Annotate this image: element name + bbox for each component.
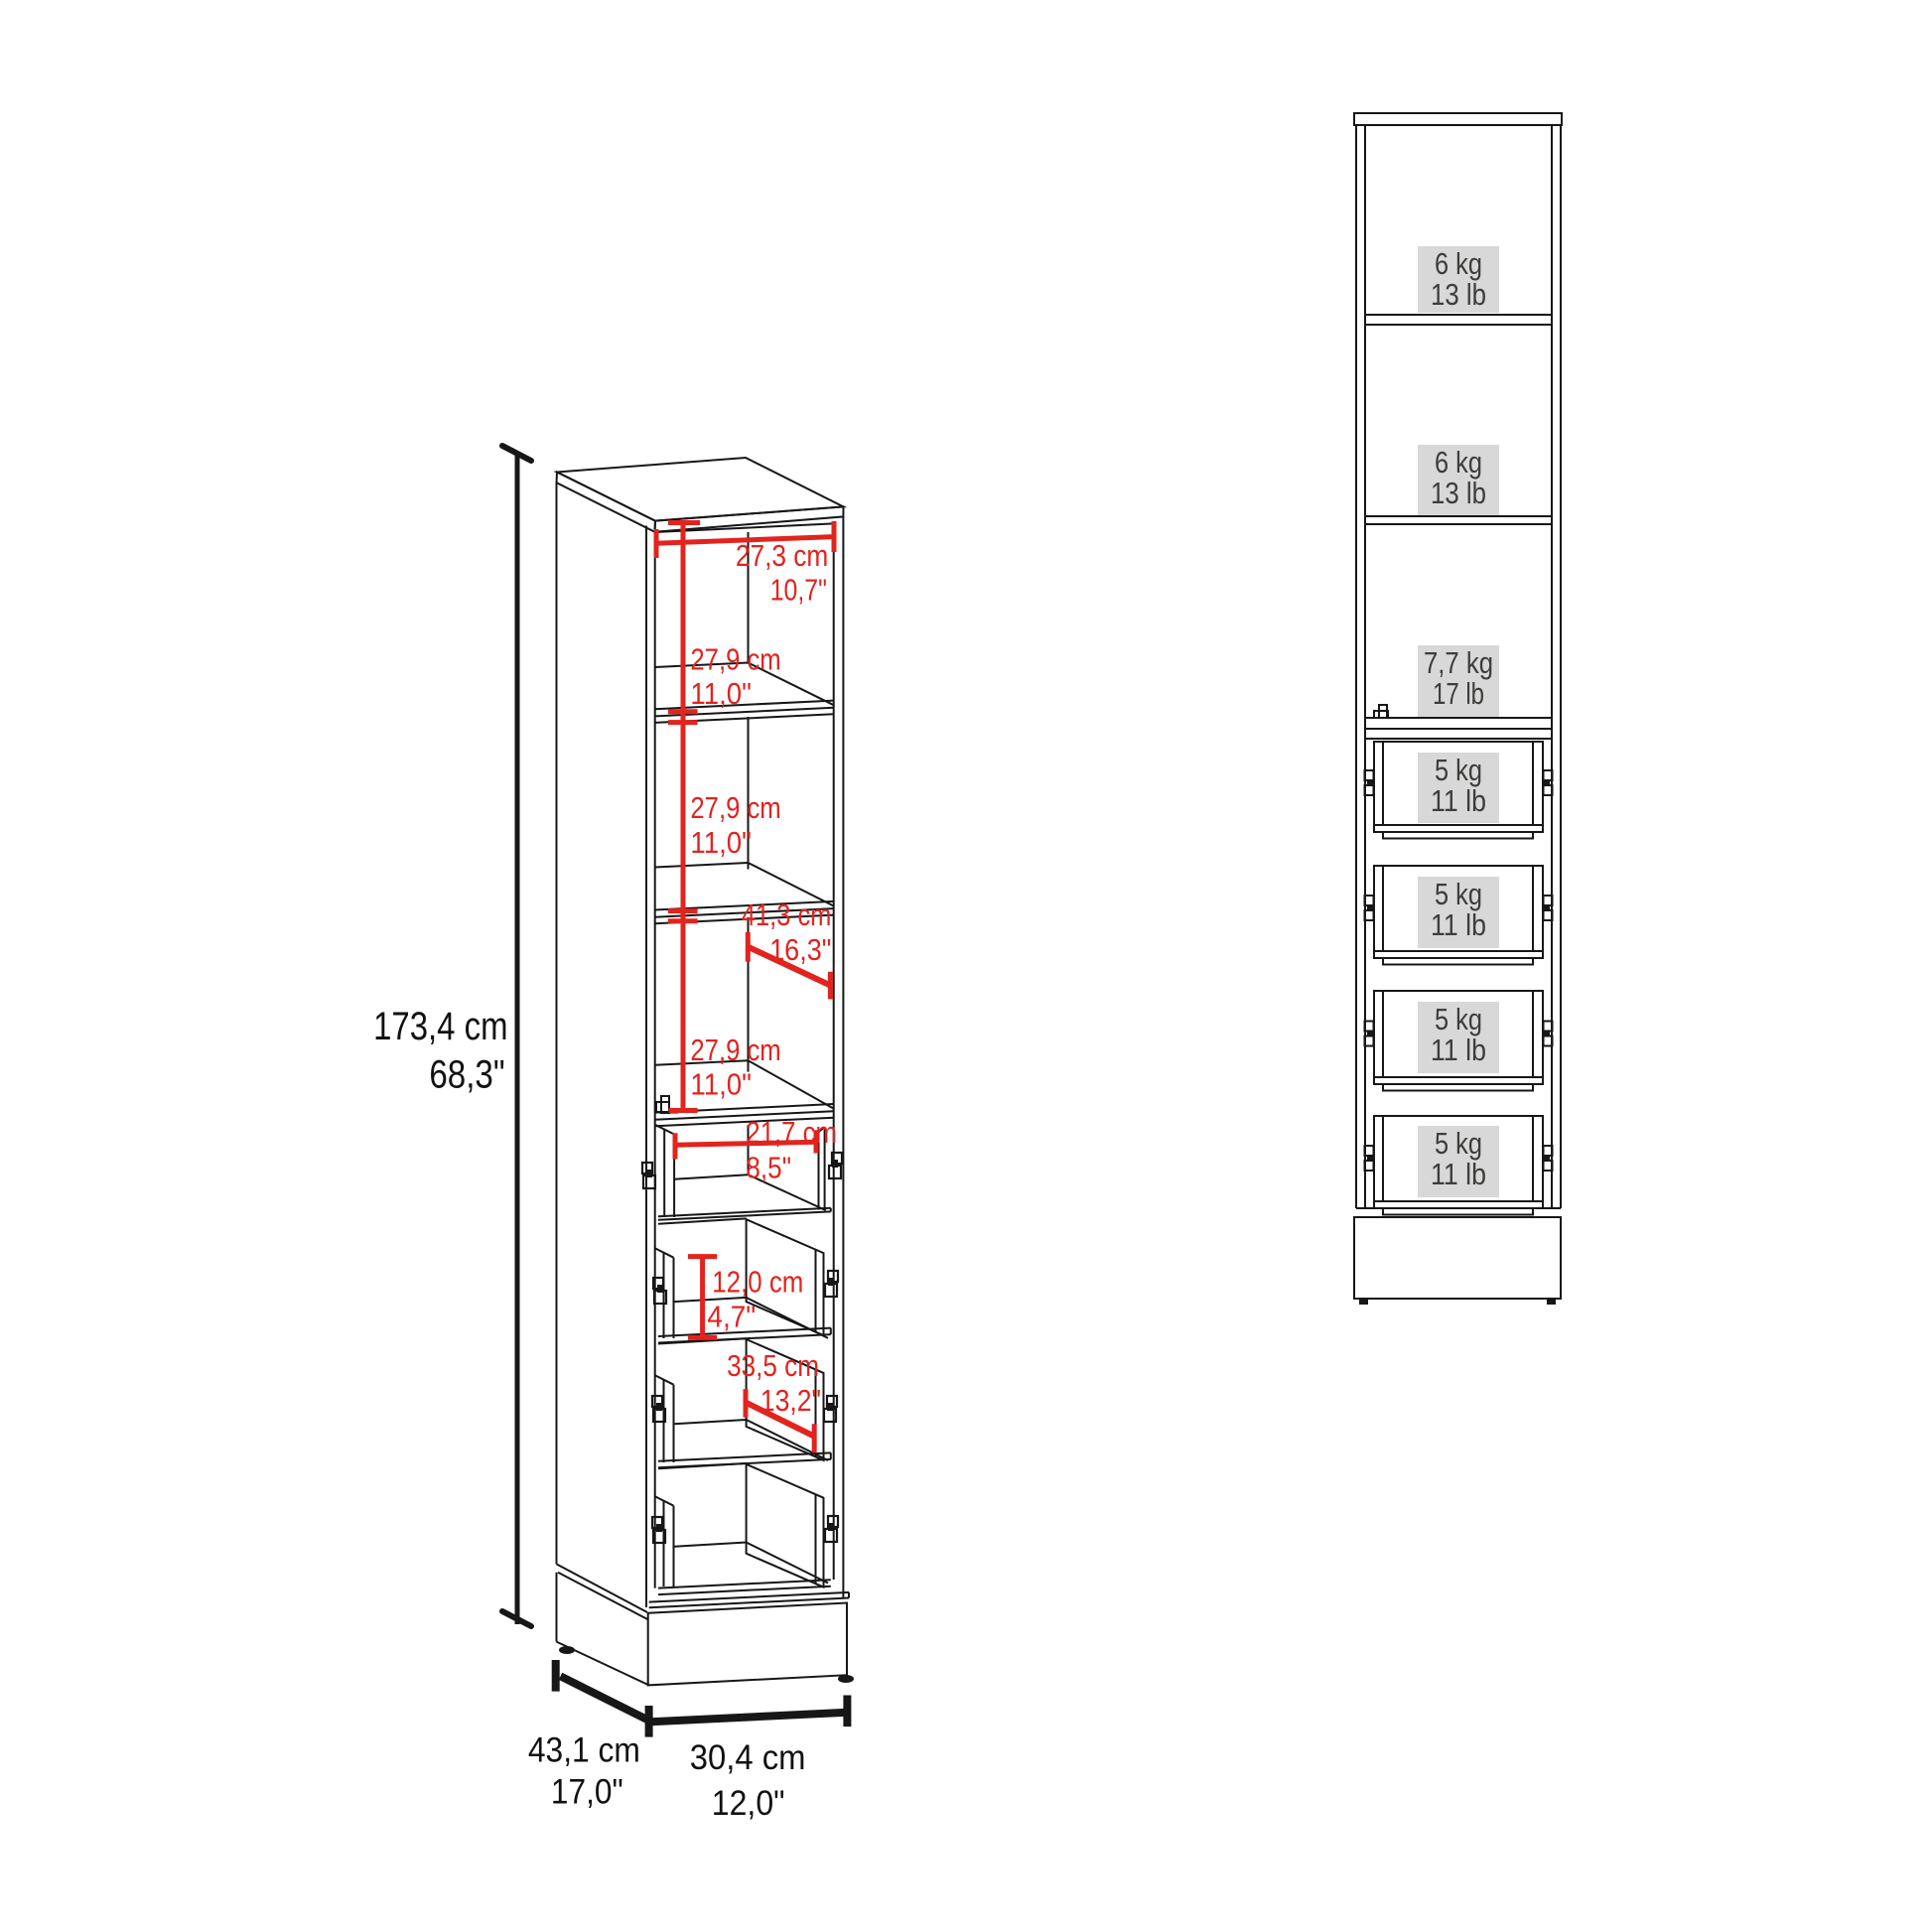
svg-text:12,0": 12,0"	[712, 1784, 785, 1823]
svg-text:21,7 cm: 21,7 cm	[746, 1115, 837, 1150]
svg-text:17 lb: 17 lb	[1433, 676, 1484, 711]
svg-text:7,7 kg: 7,7 kg	[1424, 645, 1493, 680]
svg-text:11 lb: 11 lb	[1431, 1033, 1486, 1067]
svg-text:27,9 cm: 27,9 cm	[690, 642, 780, 677]
svg-text:13 lb: 13 lb	[1431, 476, 1486, 510]
svg-text:13,2": 13,2"	[760, 1383, 821, 1418]
svg-text:10,7": 10,7"	[770, 573, 827, 608]
svg-text:8,5": 8,5"	[746, 1151, 791, 1185]
svg-text:11 lb: 11 lb	[1431, 783, 1486, 818]
svg-text:5 kg: 5 kg	[1435, 877, 1482, 911]
svg-text:6 kg: 6 kg	[1435, 246, 1482, 281]
svg-text:68,3": 68,3"	[429, 1053, 504, 1097]
svg-text:11 lb: 11 lb	[1431, 907, 1486, 942]
svg-text:27,3 cm: 27,3 cm	[736, 538, 828, 573]
svg-text:43,1 cm: 43,1 cm	[528, 1731, 640, 1770]
svg-text:13 lb: 13 lb	[1431, 277, 1486, 312]
svg-text:4,7": 4,7"	[707, 1300, 756, 1334]
svg-text:16,3": 16,3"	[769, 932, 831, 967]
svg-text:5 kg: 5 kg	[1435, 753, 1482, 787]
svg-text:12,0 cm: 12,0 cm	[712, 1265, 803, 1300]
svg-text:5 kg: 5 kg	[1435, 1126, 1482, 1161]
svg-text:27,9 cm: 27,9 cm	[690, 790, 780, 825]
svg-text:41,3 cm: 41,3 cm	[742, 897, 832, 932]
svg-text:33,5 cm: 33,5 cm	[727, 1348, 819, 1383]
svg-text:11,0": 11,0"	[690, 825, 752, 860]
svg-text:30,4 cm: 30,4 cm	[690, 1738, 806, 1777]
svg-text:11 lb: 11 lb	[1431, 1157, 1486, 1191]
svg-text:27,9 cm: 27,9 cm	[690, 1033, 780, 1067]
svg-text:11,0": 11,0"	[690, 1067, 752, 1102]
svg-text:173,4 cm: 173,4 cm	[373, 1005, 507, 1048]
svg-text:6 kg: 6 kg	[1435, 445, 1482, 480]
svg-text:5 kg: 5 kg	[1435, 1002, 1482, 1036]
svg-text:11,0": 11,0"	[690, 676, 752, 711]
svg-text:17,0": 17,0"	[551, 1773, 623, 1812]
